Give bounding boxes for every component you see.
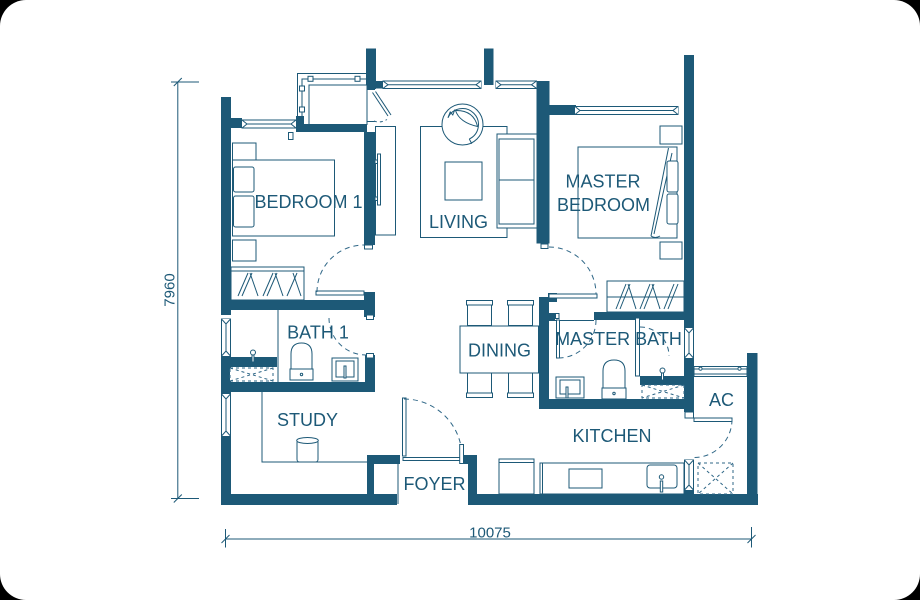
svg-text:MASTER BATH: MASTER BATH — [555, 329, 682, 349]
svg-text:LIVING: LIVING — [429, 212, 488, 232]
svg-text:DINING: DINING — [468, 341, 531, 361]
svg-text:7960: 7960 — [162, 273, 179, 306]
svg-text:BEDROOM: BEDROOM — [557, 195, 650, 215]
svg-text:KITCHEN: KITCHEN — [572, 426, 651, 446]
svg-text:MASTER: MASTER — [565, 172, 640, 192]
svg-text:BEDROOM 1: BEDROOM 1 — [254, 192, 362, 212]
svg-text:10075: 10075 — [469, 525, 511, 542]
svg-text:AC: AC — [709, 390, 734, 410]
svg-text:BATH 1: BATH 1 — [287, 323, 349, 343]
svg-text:FOYER: FOYER — [403, 474, 465, 494]
svg-text:STUDY: STUDY — [277, 410, 338, 430]
